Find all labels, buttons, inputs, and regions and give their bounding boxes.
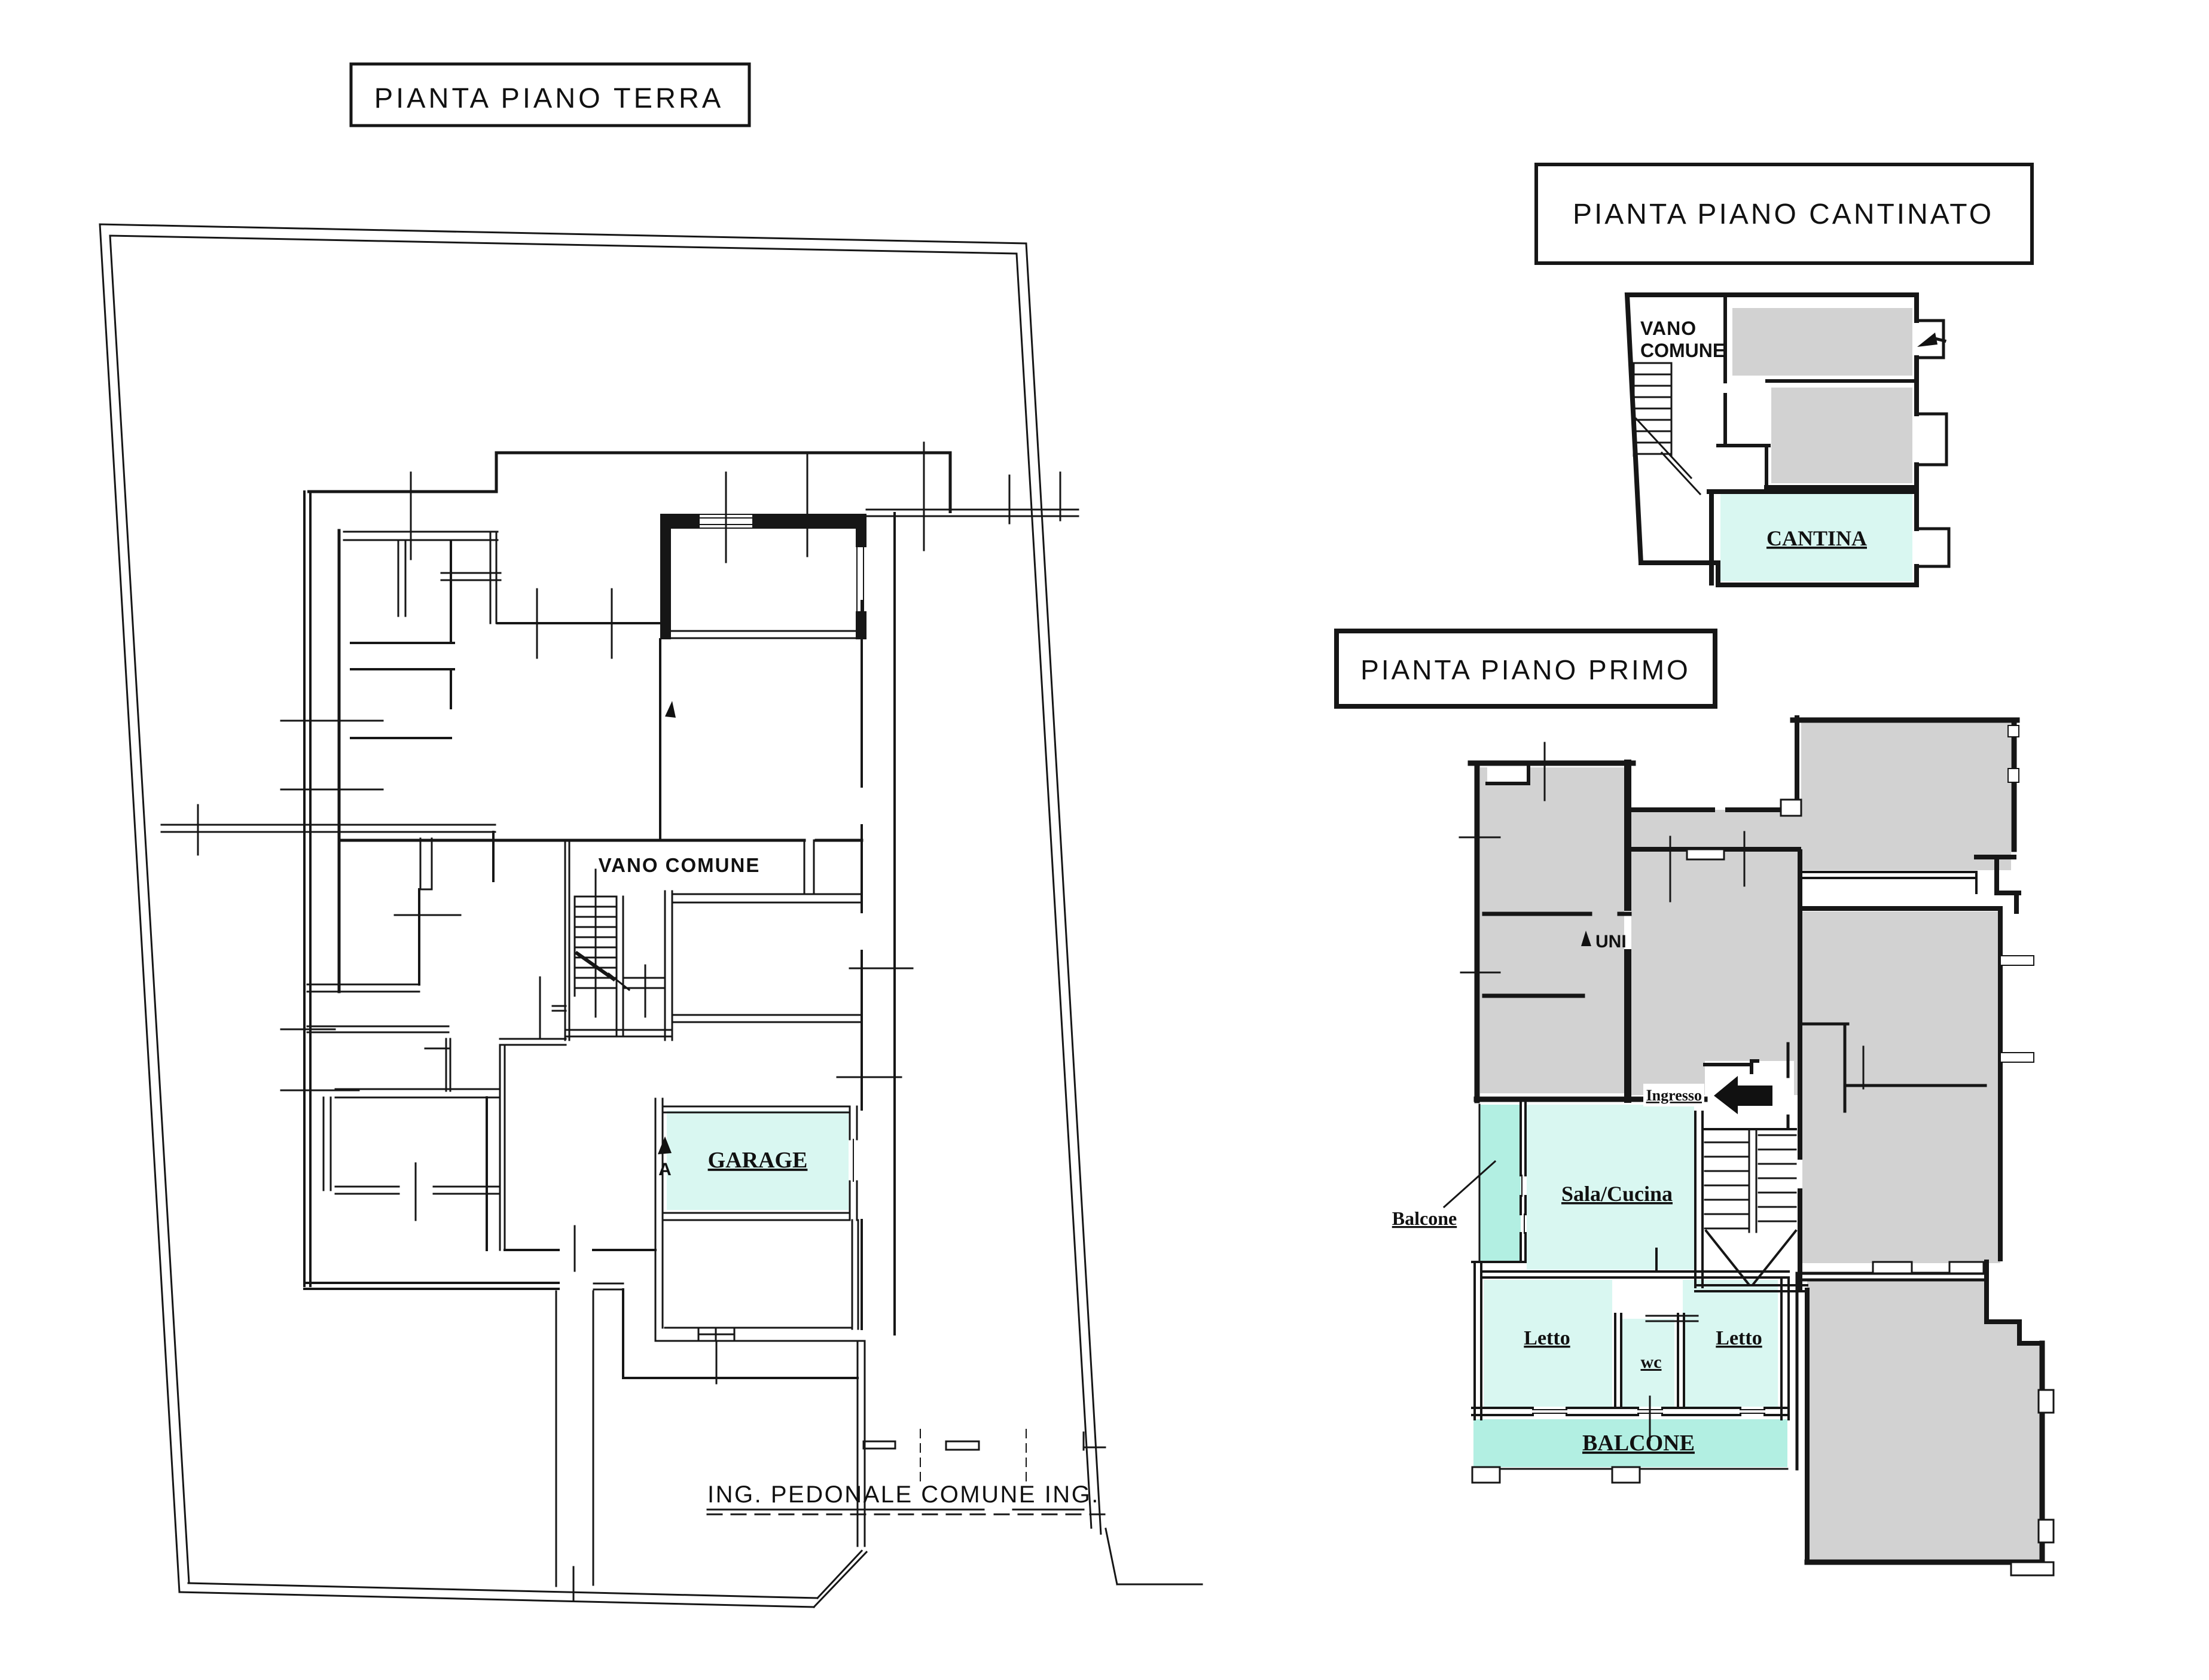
- svg-text:ING. PEDONALE COMUNE ING.: ING. PEDONALE COMUNE ING.: [707, 1481, 1100, 1508]
- svg-text:A: A: [658, 1160, 672, 1179]
- svg-text:VANO: VANO: [1640, 318, 1697, 339]
- svg-text:Balcone: Balcone: [1392, 1208, 1457, 1229]
- svg-text:PIANTA PIANO TERRA: PIANTA PIANO TERRA: [374, 82, 724, 114]
- svg-text:Ingresso: Ingresso: [1646, 1087, 1702, 1104]
- svg-text:PIANTA PIANO CANTINATO: PIANTA PIANO CANTINATO: [1573, 199, 1994, 230]
- svg-text:CANTINA: CANTINA: [1766, 526, 1867, 550]
- svg-text:Letto: Letto: [1524, 1327, 1570, 1349]
- svg-text:wc: wc: [1641, 1352, 1662, 1372]
- svg-text:Letto: Letto: [1716, 1327, 1762, 1349]
- svg-text:COMUNE: COMUNE: [1640, 340, 1725, 361]
- svg-text:BALCONE: BALCONE: [1582, 1431, 1695, 1456]
- svg-text:PIANTA PIANO PRIMO: PIANTA PIANO PRIMO: [1360, 654, 1691, 685]
- svg-text:UNI: UNI: [1595, 932, 1627, 952]
- svg-text:Sala/Cucina: Sala/Cucina: [1561, 1182, 1673, 1206]
- svg-text:GARAGE: GARAGE: [708, 1148, 808, 1173]
- svg-text:VANO COMUNE: VANO COMUNE: [599, 854, 761, 876]
